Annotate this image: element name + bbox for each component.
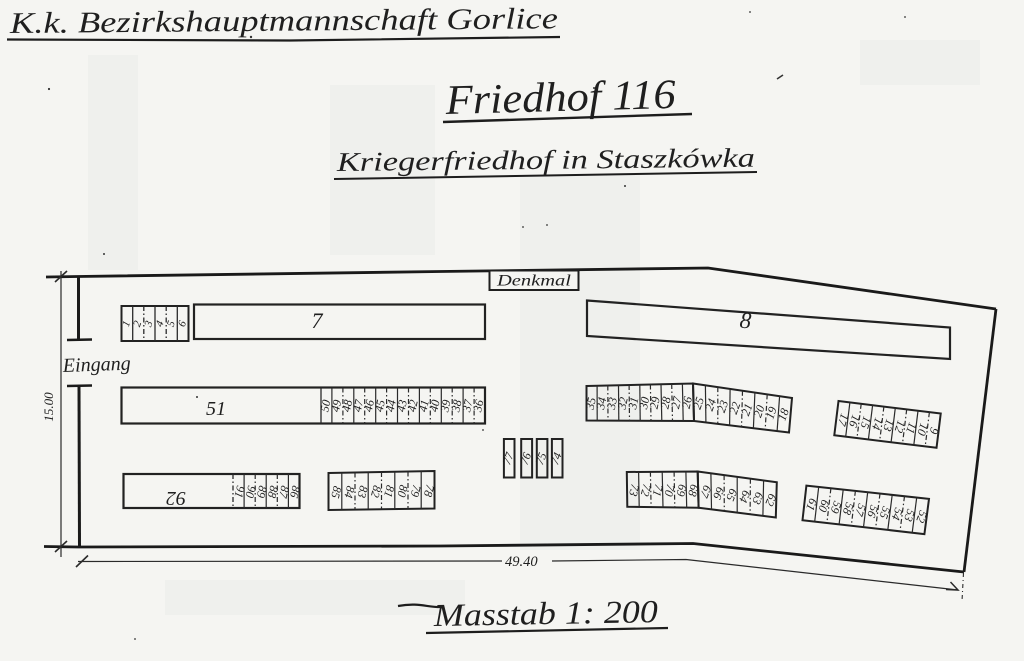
svg-text:92: 92	[166, 487, 186, 509]
svg-text:Denkmal: Denkmal	[496, 273, 571, 290]
svg-text:15.00: 15.00	[41, 392, 56, 422]
svg-text:51: 51	[206, 398, 226, 420]
svg-text:7: 7	[312, 308, 324, 333]
svg-text:49.40: 49.40	[505, 554, 538, 570]
svg-text:Masstab 1: 200: Masstab 1: 200	[432, 593, 658, 633]
svg-text:Eingang: Eingang	[61, 353, 131, 377]
svg-text:8: 8	[739, 308, 753, 334]
svg-text:Kriegerfriedhof in Staszkówka: Kriegerfriedhof in Staszkówka	[335, 143, 755, 177]
svg-text:K.k. Bezirkshauptmannschaft Go: K.k. Bezirkshauptmannschaft Gorlice	[9, 2, 558, 40]
